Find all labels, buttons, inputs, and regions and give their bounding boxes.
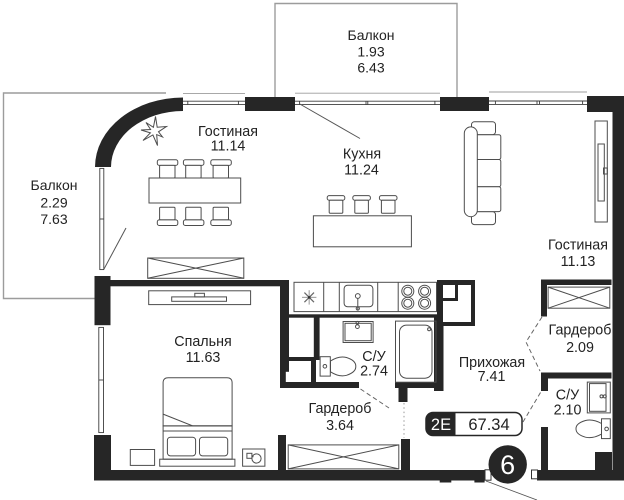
- svg-text:Кухня: Кухня: [343, 147, 381, 163]
- svg-text:Гардероб: Гардероб: [549, 323, 612, 339]
- svg-text:Балкон: Балкон: [348, 27, 395, 43]
- svg-text:2.74: 2.74: [360, 364, 388, 380]
- svg-text:Балкон: Балкон: [31, 177, 78, 193]
- svg-text:7.41: 7.41: [478, 369, 506, 385]
- svg-text:11.63: 11.63: [186, 350, 221, 366]
- svg-text:2.29: 2.29: [40, 195, 67, 211]
- svg-text:67.34: 67.34: [468, 416, 509, 434]
- svg-text:6: 6: [500, 450, 515, 480]
- svg-text:Гостиная: Гостиная: [548, 238, 608, 254]
- svg-text:С/У: С/У: [556, 388, 580, 404]
- svg-text:3.64: 3.64: [326, 418, 354, 434]
- svg-text:2.09: 2.09: [566, 340, 594, 356]
- svg-text:1.93: 1.93: [357, 44, 384, 60]
- svg-text:2.10: 2.10: [554, 403, 582, 419]
- svg-text:11.13: 11.13: [561, 254, 596, 270]
- svg-text:2Е: 2Е: [431, 416, 451, 434]
- svg-text:Спальня: Спальня: [174, 334, 231, 350]
- svg-text:7.63: 7.63: [40, 211, 67, 227]
- svg-text:6.43: 6.43: [357, 60, 384, 76]
- svg-text:11.24: 11.24: [344, 163, 379, 179]
- svg-text:11.14: 11.14: [211, 139, 246, 155]
- svg-text:Гардероб: Гардероб: [309, 401, 372, 417]
